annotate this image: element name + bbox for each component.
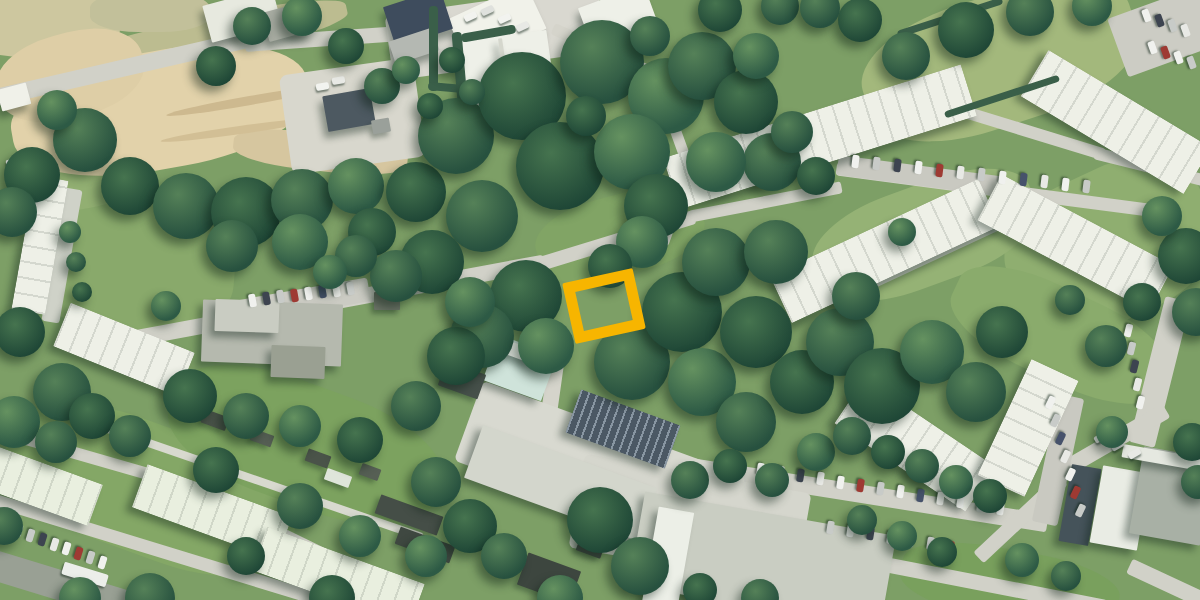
car — [275, 289, 284, 303]
tree — [698, 0, 742, 32]
car — [977, 167, 986, 181]
car — [49, 537, 59, 551]
tree — [800, 0, 840, 28]
tree — [1051, 561, 1081, 591]
tree — [838, 0, 882, 42]
hedge — [429, 6, 438, 91]
car — [73, 546, 83, 560]
car — [345, 281, 354, 295]
tree — [1142, 196, 1182, 236]
car — [303, 286, 312, 300]
car — [872, 156, 881, 170]
tree — [153, 173, 219, 239]
car — [97, 555, 107, 569]
tree — [328, 28, 364, 64]
tree — [771, 111, 813, 153]
tree — [386, 162, 446, 222]
tree — [439, 47, 465, 73]
car — [816, 471, 825, 485]
tree — [411, 457, 461, 507]
tree — [887, 521, 917, 551]
car — [826, 520, 835, 534]
tree — [832, 272, 880, 320]
aerial-map-canvas[interactable] — [0, 0, 1200, 600]
tree — [313, 255, 347, 289]
car — [331, 75, 345, 84]
car — [893, 158, 902, 172]
car — [25, 528, 35, 542]
tree — [973, 479, 1007, 513]
car — [896, 484, 905, 498]
tree — [938, 2, 994, 58]
tree — [946, 362, 1006, 422]
tree — [518, 318, 574, 374]
tree — [417, 93, 443, 119]
tree — [833, 417, 871, 455]
tree — [716, 392, 776, 452]
car — [1185, 55, 1196, 70]
tree — [35, 421, 77, 463]
road — [1126, 559, 1200, 600]
tree — [59, 221, 81, 243]
tree — [339, 515, 381, 557]
tree — [733, 33, 779, 79]
tree — [151, 291, 181, 321]
tree — [223, 393, 269, 439]
car — [289, 288, 298, 302]
car — [1040, 174, 1049, 188]
tree — [671, 461, 709, 499]
tree — [427, 327, 485, 385]
car — [85, 550, 95, 564]
tree — [206, 220, 258, 272]
tree — [744, 220, 808, 284]
tree — [939, 465, 973, 499]
car — [1019, 172, 1028, 186]
tree — [66, 252, 86, 272]
tree — [69, 393, 115, 439]
tree — [391, 381, 441, 431]
tree — [277, 483, 323, 529]
tree — [976, 306, 1028, 358]
tree — [445, 277, 495, 327]
car — [914, 160, 923, 174]
car — [247, 293, 256, 307]
tree — [101, 157, 159, 215]
car — [836, 475, 845, 489]
car — [916, 488, 925, 502]
tree — [405, 535, 447, 577]
car — [956, 165, 965, 179]
tree — [227, 537, 265, 575]
car — [61, 541, 71, 555]
tree — [72, 282, 92, 302]
tree — [459, 79, 485, 105]
tree — [337, 417, 383, 463]
tree — [1123, 283, 1161, 321]
tree — [713, 449, 747, 483]
car — [261, 291, 270, 305]
tree — [797, 157, 835, 195]
tree — [682, 228, 750, 296]
tree — [37, 90, 77, 130]
tree — [871, 435, 905, 469]
tree — [630, 16, 670, 56]
tree — [196, 46, 236, 86]
tree — [1085, 325, 1127, 367]
tree — [797, 433, 835, 471]
tree — [683, 573, 717, 600]
tree — [392, 56, 420, 84]
tree — [328, 158, 384, 214]
tree — [0, 307, 45, 357]
tree — [125, 573, 175, 600]
car — [851, 154, 860, 168]
car — [856, 478, 865, 492]
car — [37, 532, 47, 546]
tree — [481, 533, 527, 579]
tree — [279, 405, 321, 447]
tree — [905, 449, 939, 483]
car — [315, 81, 329, 90]
tree — [566, 96, 606, 136]
tree — [714, 70, 778, 134]
tree — [761, 0, 799, 25]
tree — [882, 32, 930, 80]
tree — [1055, 285, 1085, 315]
tree — [611, 537, 669, 595]
tree — [109, 415, 151, 457]
car — [998, 170, 1007, 184]
car — [935, 163, 944, 177]
tree — [888, 218, 916, 246]
tree — [927, 537, 957, 567]
tree — [193, 447, 239, 493]
school-building — [270, 345, 325, 379]
tree — [233, 7, 271, 45]
tree — [1096, 416, 1128, 448]
car — [876, 481, 885, 495]
tree — [686, 132, 746, 192]
car — [1061, 177, 1070, 191]
dry-grass — [90, 0, 210, 32]
tree — [370, 250, 422, 302]
tree — [163, 369, 217, 423]
tree — [847, 505, 877, 535]
tree — [755, 463, 789, 497]
car — [1082, 179, 1091, 193]
tree — [1005, 543, 1039, 577]
car — [796, 468, 805, 482]
